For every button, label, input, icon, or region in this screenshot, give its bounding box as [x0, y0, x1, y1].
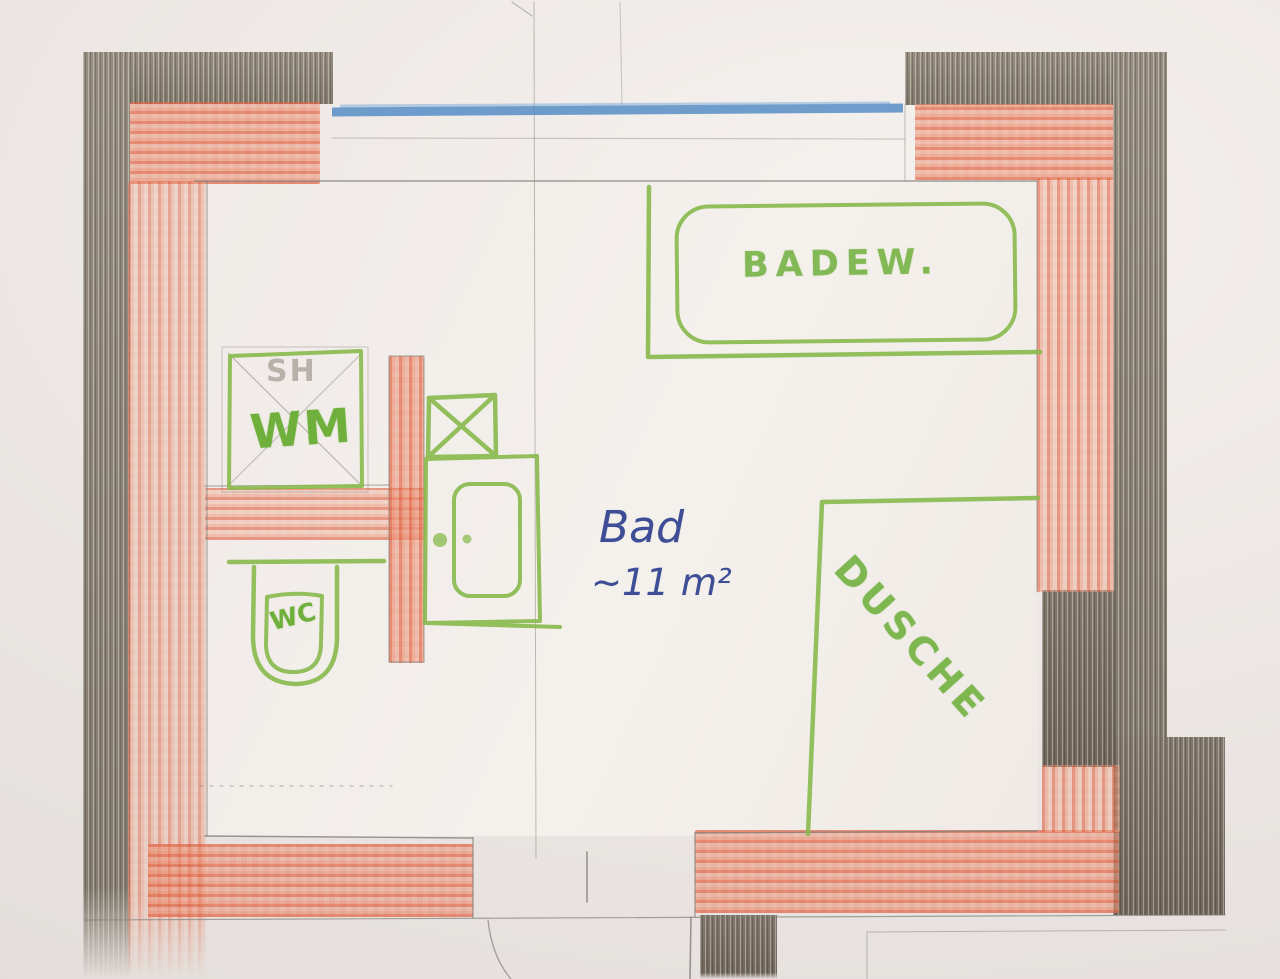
shaft-label: SH: [266, 357, 317, 387]
door-leaf-line: [690, 917, 691, 979]
window-marking-line: [332, 108, 903, 112]
guide-tick-diagonal: [512, 2, 532, 16]
washbasin-drain-dot: [463, 535, 472, 544]
guide-line-right: [620, 2, 622, 105]
toilet-zone-line: [229, 561, 384, 562]
center-guide-line: [534, 2, 536, 858]
plan-linework: [0, 0, 1280, 979]
washbasin-tap-dot: [433, 533, 447, 547]
bathtub-label: BADEW.: [742, 245, 940, 283]
door-swing-arc: [488, 920, 511, 979]
washing-machine-label: WM: [248, 402, 354, 456]
room-name-label: Bad: [599, 506, 684, 550]
bottom-wall-outer-edge: [85, 915, 1225, 920]
shaft-crossed-box-x: [428, 395, 496, 457]
printed-lines: [85, 2, 1225, 979]
room-bottom-edge-right: [695, 831, 1037, 833]
shower-line-left: [808, 502, 822, 834]
room-bottom-edge-left: [205, 836, 473, 838]
floor-plan-photo: SH WM BADEW. WC DUSCHE Bad ~11 m²: [0, 0, 1280, 979]
window-marking: [332, 103, 903, 112]
shower-line-top: [823, 498, 1038, 502]
adjacent-room-line-h: [867, 930, 1225, 932]
window-sill-line: [332, 138, 905, 139]
stub-outline: [389, 356, 424, 662]
washbasin-base-line: [425, 623, 560, 627]
room-area-label: ~11 m²: [591, 564, 732, 601]
